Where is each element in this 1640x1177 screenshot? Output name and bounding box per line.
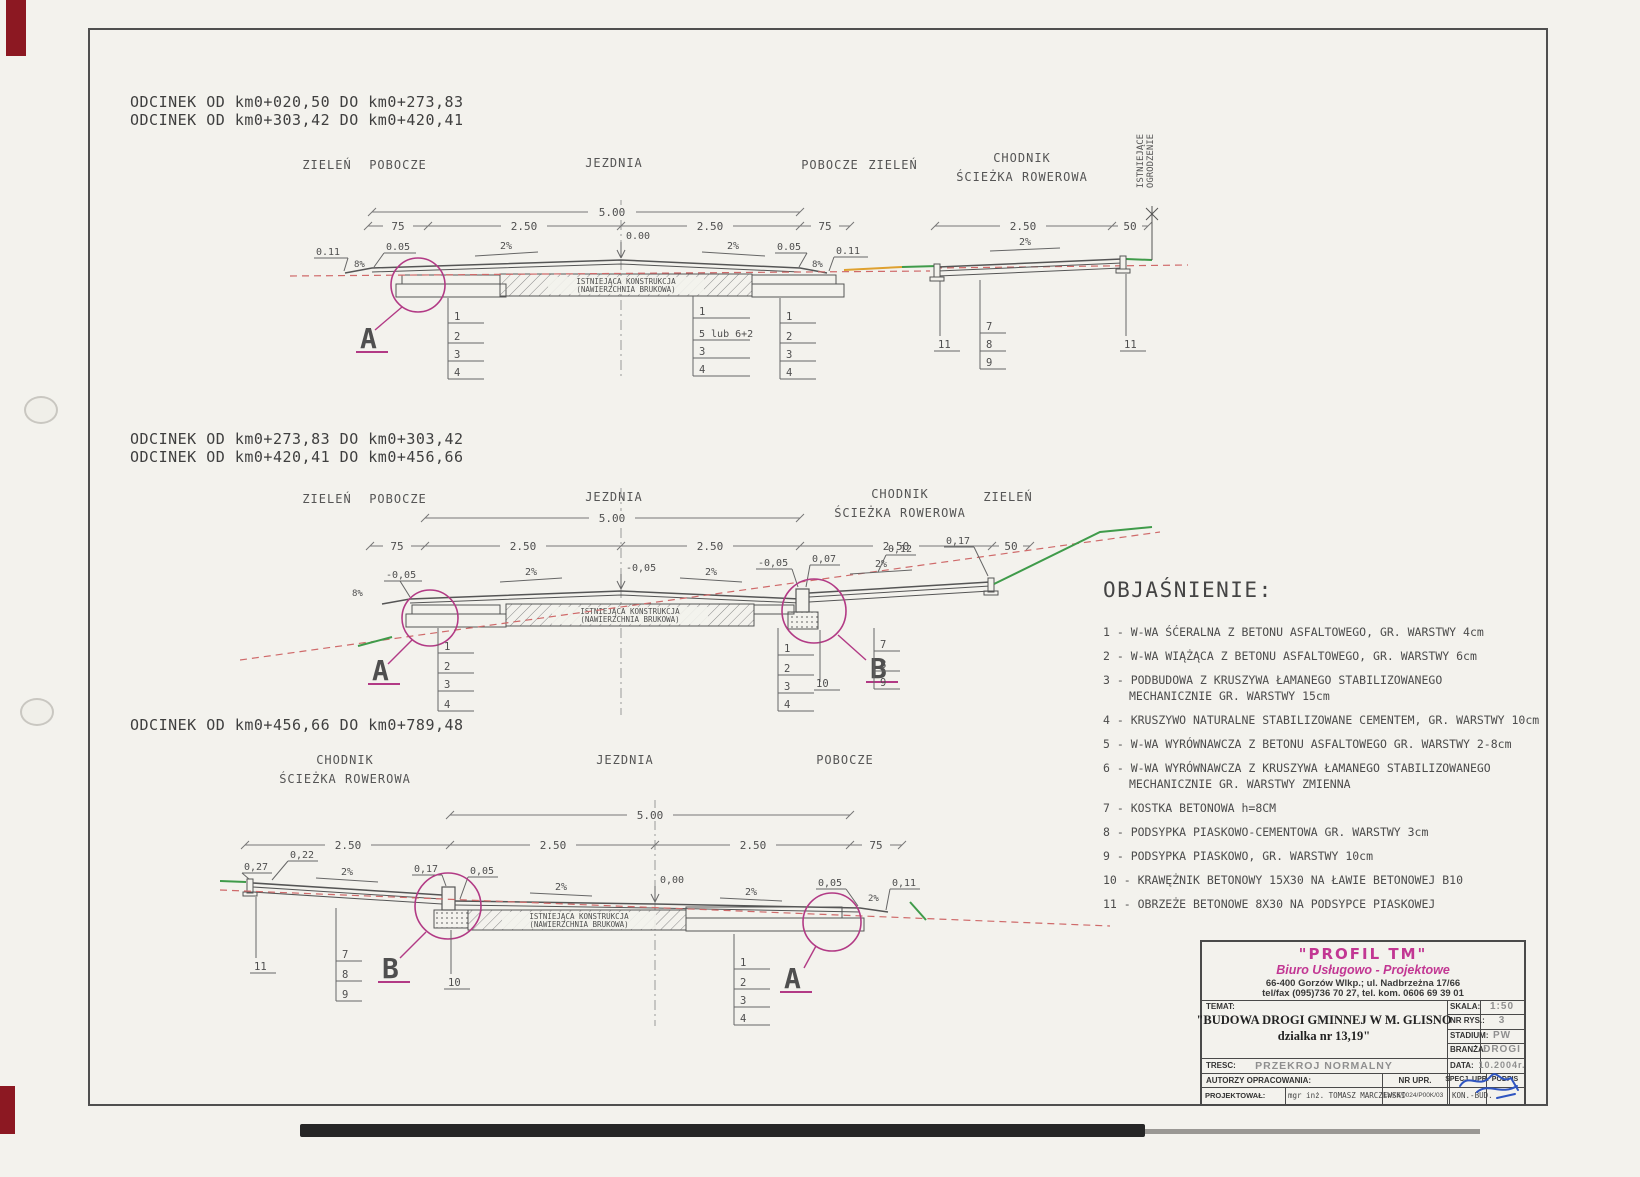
slope-2-right: 2% [727,241,739,252]
callout-a-letter: A [372,654,389,687]
layer-num: 8 [880,659,886,671]
s2-elevation-marks: -0,05 8% 2% -0,05 2% -0,05 0,07 2% 0,12 … [352,536,988,599]
layer-num: 4 [444,699,450,711]
layer-num: 8 [986,339,992,351]
dim-250-a: 2.50 [510,540,537,553]
layer-num: 11 [938,339,951,351]
layer-num: 3 [699,346,705,358]
layer-num: 1 [740,957,746,969]
slope-2-sidewalk: 2% [1019,237,1031,248]
layer-num: 2 [786,331,792,343]
section2-title-line2: ODCINEK OD km0+420,41 DO km0+456,66 [130,448,464,466]
legend-item-6: 6 - W-WA WYRÓWNAWCZA Z KRUSZYWA ŁAMANEGO… [1103,760,1573,792]
layer-num: 11 [254,961,267,973]
dim-250-b: 2.50 [540,839,567,852]
autorzy-label: AUTORZY OPRACOWANIA: [1206,1076,1311,1085]
scan-bar-dark [300,1124,1145,1137]
stadium-value: PW [1493,1030,1511,1041]
elev-012: 0,12 [888,544,912,555]
s3-label-sciezka: ŚCIEŻKA ROWEROWA [279,772,411,786]
punch-hole-bottom [20,698,54,726]
s2-dimension-labels: 5.00 75 2.50 2.50 2.50 50 [383,511,1023,553]
dim-250-left: 2.50 [511,220,538,233]
s1-label-chodnik: CHODNIK [993,151,1051,165]
s3-label-jezdnia: JEZDNIA [596,753,654,767]
s3-label-pobocze: POBOCZE [816,753,874,767]
layer-num: 1 [699,306,705,318]
elev-005-right: 0.05 [777,242,801,253]
legend-item-5: 5 - W-WA WYRÓWNAWCZA Z BETONU ASFALTOWEG… [1103,736,1573,752]
s2-layer-callouts: 1 2 3 4 1 2 3 4 10 7 8 9 [438,628,900,711]
s1-dimension-labels: 5.00 75 2.50 2.50 75 2.50 50 [383,205,1142,233]
layer-num: 4 [740,1013,746,1025]
layer-num: 9 [986,357,992,369]
layer-num: 3 [784,681,790,693]
scan-mark-bottom-left [0,1086,15,1134]
s1-label-jezdnia: JEZDNIA [585,156,643,170]
slope-2-d: 2% [868,894,879,904]
section2-title-line1: ODCINEK OD km0+273,83 DO km0+303,42 [130,430,464,448]
scan-bar-light [1145,1129,1480,1134]
legend-title: OBJAŚNIENIE: [1103,578,1573,602]
section1-title-line1: ODCINEK OD km0+020,50 DO km0+273,83 [130,93,464,111]
layer-num: 11 [1124,339,1137,351]
layer-num: 2 [740,977,746,989]
s1-label-pobocze-right: POBOCZE [801,158,859,172]
elev-005-right: -0,05 [758,558,788,569]
nrrys-label: NR RYS.: [1450,1016,1485,1025]
skala-value: 1:50 [1490,1001,1514,1012]
layer-num: 7 [986,321,992,333]
section1-title-line2: ODCINEK OD km0+303,42 DO km0+420,41 [130,111,464,129]
dim-250-a: 2.50 [335,839,362,852]
hatch-label-2: (NAWIERZCHNIA BRUKOWA) [529,920,628,929]
layer-num: 5 lub 6+2 [699,329,753,340]
callout-a-letter: A [360,322,377,355]
elev-005-center: -0,05 [626,563,656,574]
layer-num: 9 [880,677,886,689]
elev-005-b: 0,05 [818,878,842,889]
layer-num: 3 [454,349,460,361]
callout-b-circle [782,579,846,643]
layer-num: 7 [342,949,348,961]
nrrys-value: 3 [1499,1015,1506,1026]
curb-foundation [788,612,818,629]
s1-existing-pavement-hatch: ISTNIEJĄCA KONSTRUKCJA (NAWIERZCHNIA BRU… [500,274,752,296]
s3-existing-pavement-hatch: ISTNIEJĄCA KONSTRUKCJA (NAWIERZCHNIA BRU… [468,910,686,930]
punch-hole-top [24,396,58,424]
legend-item-9: 9 - PODSYPKA PIASKOWO, GR. WARSTWY 10cm [1103,848,1573,864]
dim-5m: 5.00 [599,512,626,525]
legend-item-11: 11 - OBRZEŻE BETONOWE 8X30 NA PODSYPCE P… [1103,896,1573,912]
s1-fence-icon [1146,206,1158,260]
layer-num: 3 [444,679,450,691]
elev-017: 0,17 [414,864,438,875]
section3-title: ODCINEK OD km0+456,66 DO km0+789,48 [130,716,464,734]
skala-label: SKALA: [1450,1002,1480,1011]
slope-2-left: 2% [500,241,512,252]
slope-8-right: 8% [812,260,823,270]
elev-011-left: 0.11 [316,247,340,258]
projektowal-nrupr: LUK6/0024/P00K/03 [1384,1092,1443,1099]
curb-block [796,589,809,612]
slope-2-b: 2% [555,882,567,893]
branza-value: DROGI [1483,1044,1521,1055]
s1-sidewalk [930,256,1130,281]
layer-num: 10 [816,678,829,690]
curb-block [442,887,455,910]
s3-curb [434,887,468,928]
layer-num: 4 [454,367,460,379]
dim-5m: 5.00 [599,206,626,219]
nrupr-label: NR UPR. [1399,1076,1432,1085]
slope-2-c: 2% [745,887,757,898]
title-block: "PROFIL TM" Biuro Usługowo - Projektowe … [1200,940,1526,1106]
s1-label-sciezka: ŚCIEŻKA ROWEROWA [956,170,1088,184]
s1-elevation-marks: 0.11 8% 0.05 2% 0.00 2% 0.05 8% 0.11 2% [314,231,1060,271]
elev-007: 0,07 [812,554,836,565]
layer-num: 1 [784,643,790,655]
tresc-value: PRZEKROJ NORMALNY [1255,1060,1393,1072]
hatch-label-2: (NAWIERZCHNIA BRUKOWA) [576,285,675,294]
layer-num: 4 [699,364,705,376]
layer-num: 1 [444,641,450,653]
signature [1457,1064,1521,1102]
stadium-label: STADIUM: [1450,1031,1489,1040]
layer-num: 3 [740,995,746,1007]
dim-75-right: 75 [818,220,831,233]
s1-label-zielen-right: ZIELEŃ [868,158,917,172]
dim-75: 75 [869,839,882,852]
layer-num: 1 [786,311,792,323]
elev-005-left: -0,05 [386,570,416,581]
elev-011: 0,11 [892,878,916,889]
s1-label-zielen-left: ZIELEŃ [302,158,351,172]
company-subtitle: Biuro Usługowo - Projektowe [1276,963,1450,977]
s3-elevation-marks: 0,27 0,22 2% 0,17 0,05 2% 0,00 2% 0,05 2… [242,850,920,910]
s3-callout-b: B [378,873,481,985]
elev-011-right: 0.11 [836,246,860,257]
legend-item-2: 2 - W-WA WIĄŻĄCA Z BETONU ASFALTOWEGO, G… [1103,648,1573,664]
dim-250-b: 2.50 [697,540,724,553]
layer-num: 2 [454,331,460,343]
slope-2-b: 2% [705,567,717,578]
s3-label-chodnik: CHODNIK [316,753,374,767]
dim-50: 50 [1123,220,1136,233]
layer-num: 2 [444,661,450,673]
s3-cross-section-drawing: 5.00 2.50 2.50 2.50 75 [220,786,1140,1036]
layer-num: 3 [786,349,792,361]
layer-num: 1 [454,311,460,323]
elev-000: 0,00 [660,875,684,886]
s3-sidewalk [243,879,442,904]
legend-item-1: 1 - W-WA ŚĆERALNA Z BETONU ASFALTOWEGO, … [1103,624,1573,640]
elev-005-left: 0.05 [386,242,410,253]
s1-cross-section-drawing: 5.00 75 2.50 2.50 75 2.50 50 ISTNIEJĄCA [290,188,1190,398]
branza-label: BRANŻA: [1450,1045,1486,1054]
hatch-label-2: (NAWIERZCHNIA BRUKOWA) [580,615,679,624]
company-name: "PROFIL TM" [1299,945,1428,963]
dim-5m: 5.00 [637,809,664,822]
elev-022: 0,22 [290,850,314,861]
legend: OBJAŚNIENIE: 1 - W-WA ŚĆERALNA Z BETONU … [1103,578,1573,920]
temat-line2: dzialka nr 13,19" [1278,1029,1371,1044]
temat-label: TEMAT: [1206,1002,1235,1011]
slope-8: 8% [352,589,363,599]
s2-existing-pavement-hatch: ISTNIEJĄCA KONSTRUKCJA (NAWIERZCHNIA BRU… [506,604,754,626]
elev-005-a: 0,05 [470,866,494,877]
callout-a-letter: A [784,962,801,995]
s1-label-pobocze-left: POBOCZE [369,158,427,172]
dim-250-right: 2.50 [697,220,724,233]
callout-a-circle [803,893,861,951]
dim-250-c: 2.50 [740,839,767,852]
s2-cross-section-drawing: 5.00 75 2.50 2.50 2.50 50 ISTNIEJĄCA KON… [240,470,1160,740]
layer-num: 4 [784,699,790,711]
layer-num: 9 [342,989,348,1001]
tresc-label: TRESC: [1206,1061,1236,1070]
legend-item-8: 8 - PODSYPKA PIASKOWO-CEMENTOWA GR. WARS… [1103,824,1573,840]
layer-num: 10 [448,977,461,989]
temat-line1: "BUDOWA DROGI GMINNEJ W M. GLISNO [1196,1013,1451,1028]
drawing-sheet: ODCINEK OD km0+020,50 DO km0+273,83 ODCI… [0,0,1640,1177]
slope-2-a: 2% [525,567,537,578]
s1-callout-a: A [356,258,445,355]
company-phone: tel/fax (095)736 70 27, tel. kom. 0606 6… [1262,988,1464,999]
dim-50: 50 [1004,540,1017,553]
slope-8-left: 8% [354,260,365,270]
curb-foundation [434,910,468,928]
slope-2-a: 2% [341,867,353,878]
elev-027: 0,27 [244,862,268,873]
layer-num: 2 [784,663,790,675]
projektowal-label: PROJEKTOWAŁ: [1205,1091,1265,1100]
legend-item-10: 10 - KRAWĘŻNIK BETONOWY 15X30 NA ŁAWIE B… [1103,872,1573,888]
legend-item-3: 3 - PODBUDOWA Z KRUSZYWA ŁAMANEGO STABIL… [1103,672,1573,704]
dim-250-sidewalk: 2.50 [1010,220,1037,233]
legend-item-7: 7 - KOSTKA BETONOWA h=8CM [1103,800,1573,816]
scan-mark-top-left [6,0,26,56]
elev-000: 0.00 [626,231,650,242]
legend-item-4: 4 - KRUSZYWO NATURALNE STABILIZOWANE CEM… [1103,712,1573,728]
callout-b-letter: B [382,952,399,985]
s2-curb-and-sidewalk [788,578,998,629]
layer-num: 4 [786,367,792,379]
layer-num: 8 [342,969,348,981]
dim-75: 75 [390,540,403,553]
elev-017: 0,17 [946,536,970,547]
layer-num: 7 [880,639,886,651]
dim-75-left: 75 [391,220,404,233]
